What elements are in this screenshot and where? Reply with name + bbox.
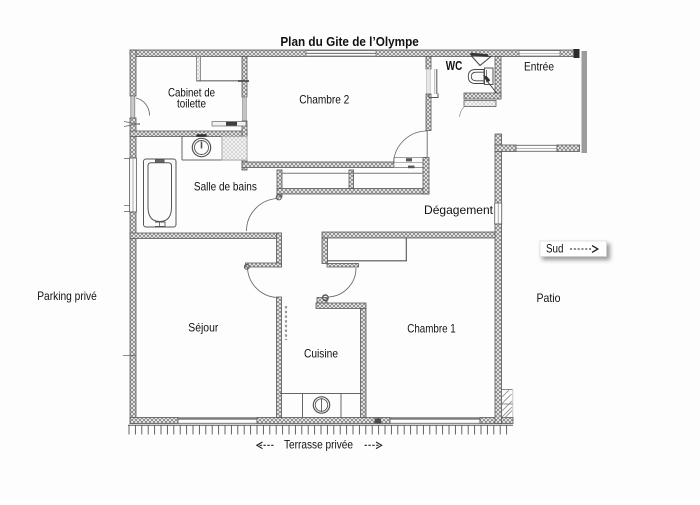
svg-text:WC: WC	[446, 59, 463, 73]
svg-text:Cuisine: Cuisine	[304, 347, 338, 361]
svg-text:Salle de bains: Salle de bains	[194, 180, 257, 194]
svg-text:Plan du Gite de l’Olympe: Plan du Gite de l’Olympe	[280, 34, 419, 49]
svg-text:Séjour: Séjour	[188, 321, 218, 335]
svg-text:Entrée: Entrée	[524, 60, 554, 74]
svg-text:Sud: Sud	[546, 242, 564, 256]
svg-text:Chambre 2: Chambre 2	[299, 93, 349, 107]
svg-text:toilette: toilette	[177, 97, 206, 111]
svg-text:Terrasse privée: Terrasse privée	[284, 438, 353, 452]
svg-text:Patio: Patio	[537, 291, 561, 305]
svg-text:Dégagement: Dégagement	[424, 203, 494, 217]
svg-text:Chambre 1: Chambre 1	[407, 322, 456, 336]
svg-text:Parking privé: Parking privé	[37, 289, 97, 303]
